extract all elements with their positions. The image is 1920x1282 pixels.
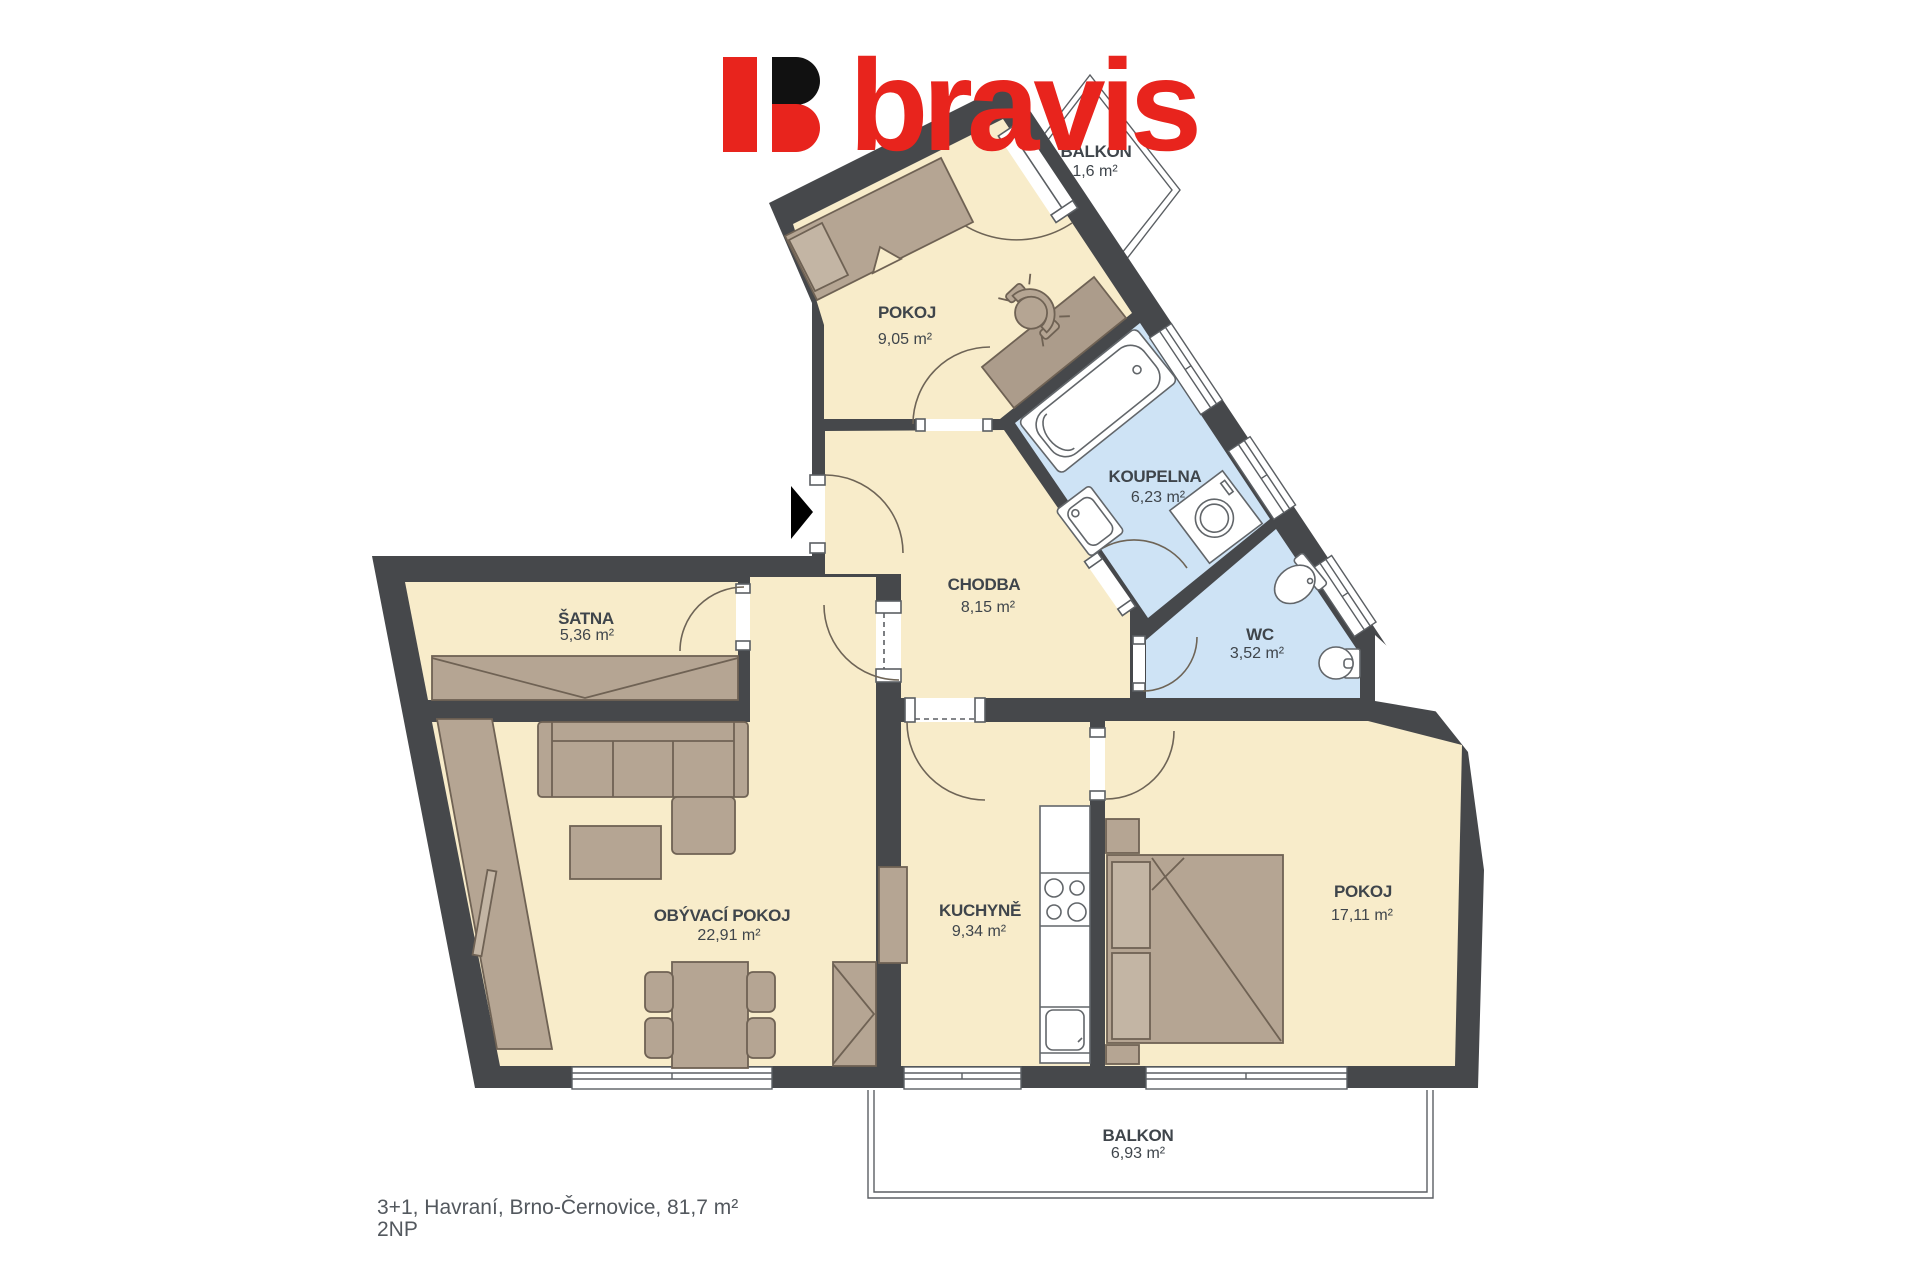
svg-text:17,11 m²: 17,11 m² [1331, 907, 1394, 924]
svg-text:KOUPELNA: KOUPELNA [1109, 467, 1202, 486]
svg-text:22,91 m²: 22,91 m² [697, 927, 761, 944]
svg-text:9,34 m²: 9,34 m² [952, 923, 1007, 940]
svg-text:9,05 m²: 9,05 m² [878, 331, 933, 348]
svg-text:POKOJ: POKOJ [878, 303, 936, 322]
svg-text:OBÝVACÍ POKOJ: OBÝVACÍ POKOJ [654, 906, 791, 925]
svg-text:POKOJ: POKOJ [1334, 882, 1392, 901]
svg-text:3,52 m²: 3,52 m² [1230, 645, 1285, 662]
svg-text:CHODBA: CHODBA [948, 575, 1021, 594]
svg-text:6,93 m²: 6,93 m² [1111, 1145, 1166, 1162]
svg-text:2NP: 2NP [377, 1218, 418, 1241]
svg-text:ŠATNA: ŠATNA [558, 609, 614, 628]
svg-text:bravis: bravis [849, 32, 1197, 178]
svg-text:BALKON: BALKON [1103, 1126, 1174, 1145]
svg-text:6,23 m²: 6,23 m² [1131, 489, 1186, 506]
svg-text:WC: WC [1246, 625, 1274, 644]
svg-text:5,36 m²: 5,36 m² [560, 627, 615, 644]
svg-text:KUCHYNĚ: KUCHYNĚ [939, 901, 1021, 920]
svg-text:3+1, Havraní, Brno-Černovice,: 3+1, Havraní, Brno-Černovice, 81,7 m² [377, 1196, 738, 1219]
svg-text:8,15 m²: 8,15 m² [961, 599, 1016, 616]
